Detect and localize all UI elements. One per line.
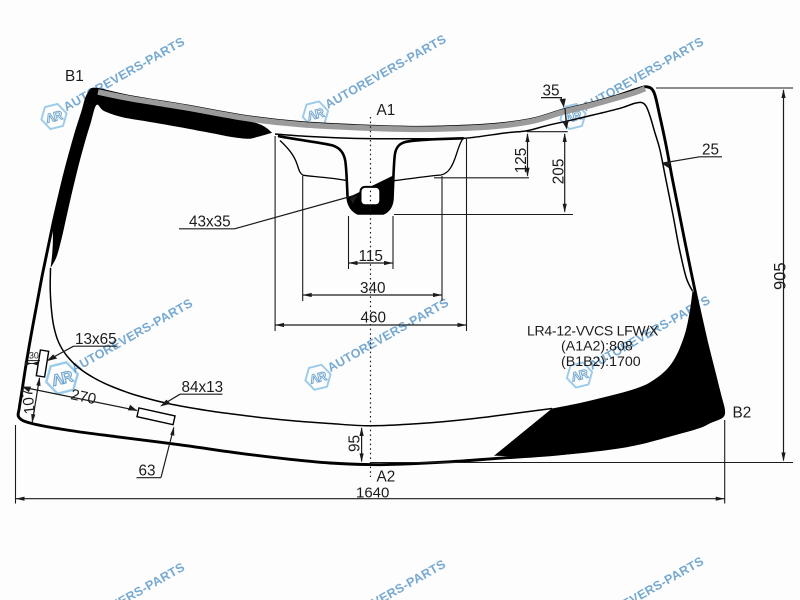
svg-text:LR4-12-VVCS LFW/X: LR4-12-VVCS LFW/X xyxy=(527,323,659,339)
svg-text:AUTOREVERS-PARTS: AUTOREVERS-PARTS xyxy=(61,560,187,600)
svg-text:(A1A2):808: (A1A2):808 xyxy=(561,338,633,354)
svg-text:AUTOREVERS-PARTS: AUTOREVERS-PARTS xyxy=(325,295,451,375)
svg-text:(B1B2):1700: (B1B2):1700 xyxy=(561,354,641,370)
svg-text:43x35: 43x35 xyxy=(189,214,231,231)
svg-text:270: 270 xyxy=(69,386,98,408)
svg-text:95: 95 xyxy=(347,435,364,452)
svg-text:115: 115 xyxy=(359,248,383,265)
svg-text:125: 125 xyxy=(513,148,530,174)
svg-text:B2: B2 xyxy=(733,405,752,422)
svg-text:84x13: 84x13 xyxy=(182,379,224,396)
svg-text:30: 30 xyxy=(29,351,39,361)
svg-text:25: 25 xyxy=(702,142,719,159)
svg-text:905: 905 xyxy=(772,262,790,290)
svg-text:AUTOREVERS-PARTS: AUTOREVERS-PARTS xyxy=(323,32,449,112)
svg-text:13x65: 13x65 xyxy=(75,331,117,348)
svg-text:ΛR: ΛR xyxy=(50,368,74,390)
svg-text:35: 35 xyxy=(543,83,560,100)
svg-text:ΛR: ΛR xyxy=(309,369,329,387)
svg-text:AUTOREVERS-PARTS: AUTOREVERS-PARTS xyxy=(580,554,706,600)
svg-text:460: 460 xyxy=(361,310,387,327)
svg-text:B1: B1 xyxy=(65,68,84,85)
svg-text:AUTOREVERS-PARTS: AUTOREVERS-PARTS xyxy=(322,557,448,600)
svg-text:340: 340 xyxy=(360,280,386,297)
svg-text:205: 205 xyxy=(551,159,568,185)
svg-text:ΛR: ΛR xyxy=(306,106,326,124)
svg-text:A1: A1 xyxy=(377,102,396,119)
svg-text:1640: 1640 xyxy=(356,485,389,502)
svg-text:63: 63 xyxy=(139,463,156,480)
svg-text:A2: A2 xyxy=(377,469,396,486)
svg-text:ΛR: ΛR xyxy=(45,108,65,126)
